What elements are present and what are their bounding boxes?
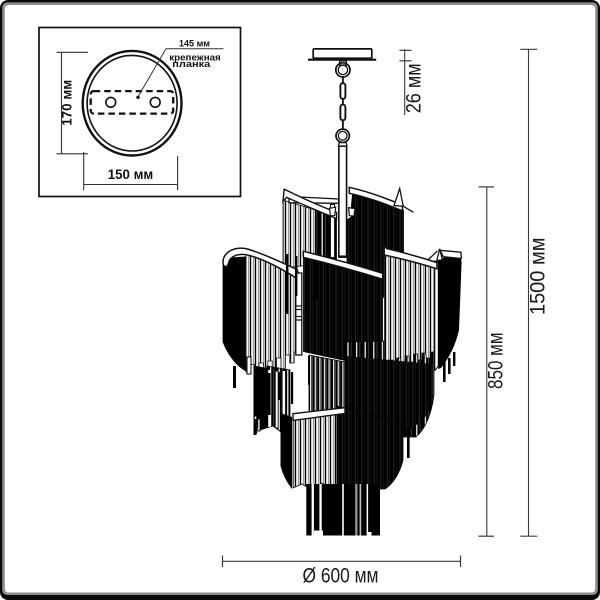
svg-text:150 мм: 150 мм: [108, 167, 154, 182]
svg-text:850 мм: 850 мм: [485, 332, 508, 389]
svg-text:145 мм: 145 мм: [179, 39, 210, 49]
svg-text:26 мм: 26 мм: [403, 63, 426, 113]
svg-text:1500 мм: 1500 мм: [527, 238, 550, 316]
svg-text:планка: планка: [172, 59, 211, 69]
svg-text:170 мм: 170 мм: [60, 80, 75, 126]
svg-text:Ø 600 мм: Ø 600 мм: [303, 564, 379, 587]
